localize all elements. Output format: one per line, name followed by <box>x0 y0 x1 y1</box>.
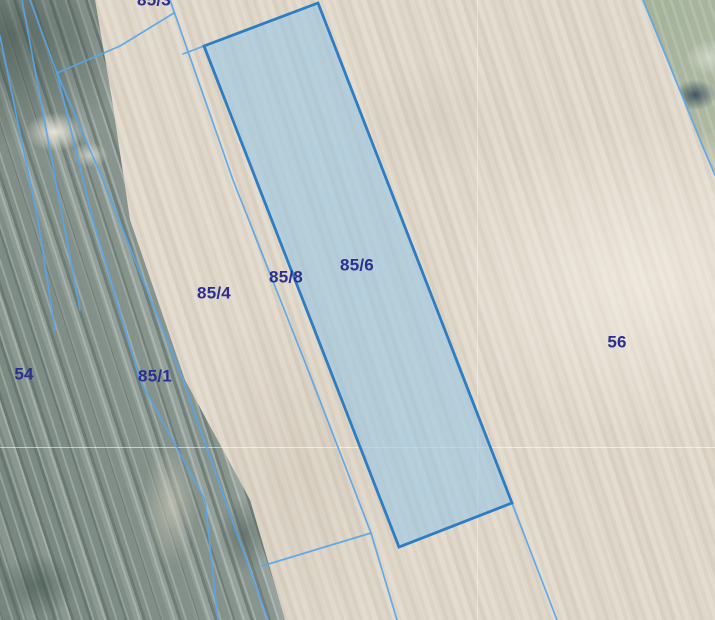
parcel-boundary-56-southwest <box>512 503 557 620</box>
parcel-label-85-1: 85/1 <box>138 368 172 385</box>
parcel-label-85-3: 85/3 <box>137 0 171 9</box>
parcel-boundary-85-3-south <box>57 13 174 73</box>
parcel-boundary-scrub-corner <box>643 0 715 175</box>
selected-parcel-85-6[interactable] <box>204 3 512 547</box>
map-canvas[interactable]: 85/3 85/4 85/8 85/6 85/1 54 56 <box>0 0 715 620</box>
parcel-boundary-south-cross <box>262 533 371 566</box>
parcel-label-85-4: 85/4 <box>197 285 231 302</box>
parcel-label-85-8: 85/8 <box>269 269 303 286</box>
parcel-label-85-6: 85/6 <box>340 257 374 274</box>
parcel-boundary-left-2 <box>22 0 80 310</box>
cadastral-overlay <box>0 0 715 620</box>
parcel-boundary-85-1-right <box>57 73 268 620</box>
parcel-boundary-85-1-left <box>30 0 218 620</box>
parcel-label-54: 54 <box>14 366 33 383</box>
parcel-boundary-far-left <box>0 36 55 330</box>
parcel-label-56: 56 <box>607 334 626 351</box>
